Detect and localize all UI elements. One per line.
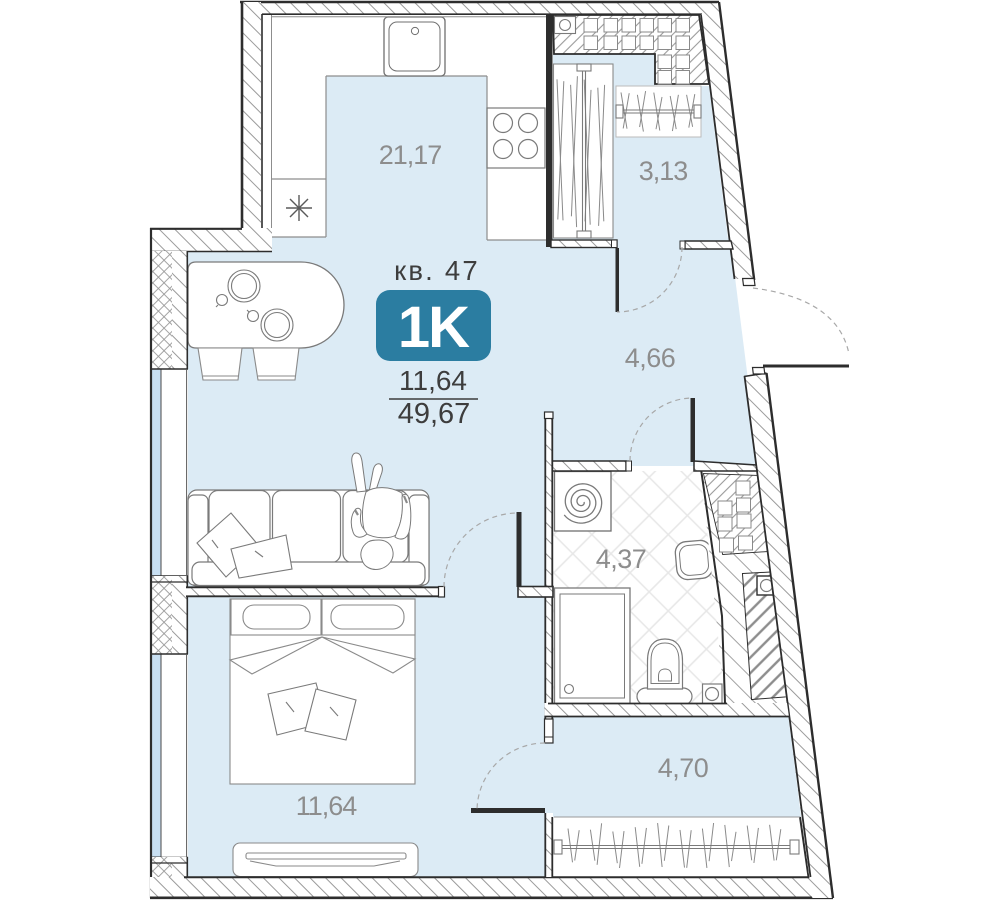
svg-text:11,64: 11,64 [296, 791, 358, 821]
svg-text:11,64: 11,64 [399, 365, 467, 396]
svg-text:49,67: 49,67 [398, 398, 471, 430]
svg-text:21,17: 21,17 [379, 140, 442, 170]
svg-text:4,37: 4,37 [596, 544, 647, 574]
svg-text:1K: 1K [398, 295, 470, 360]
svg-text:3,13: 3,13 [639, 156, 688, 186]
svg-text:4,70: 4,70 [658, 753, 709, 783]
svg-text:4,66: 4,66 [625, 343, 676, 373]
svg-text:кв. 47: кв. 47 [394, 255, 480, 286]
